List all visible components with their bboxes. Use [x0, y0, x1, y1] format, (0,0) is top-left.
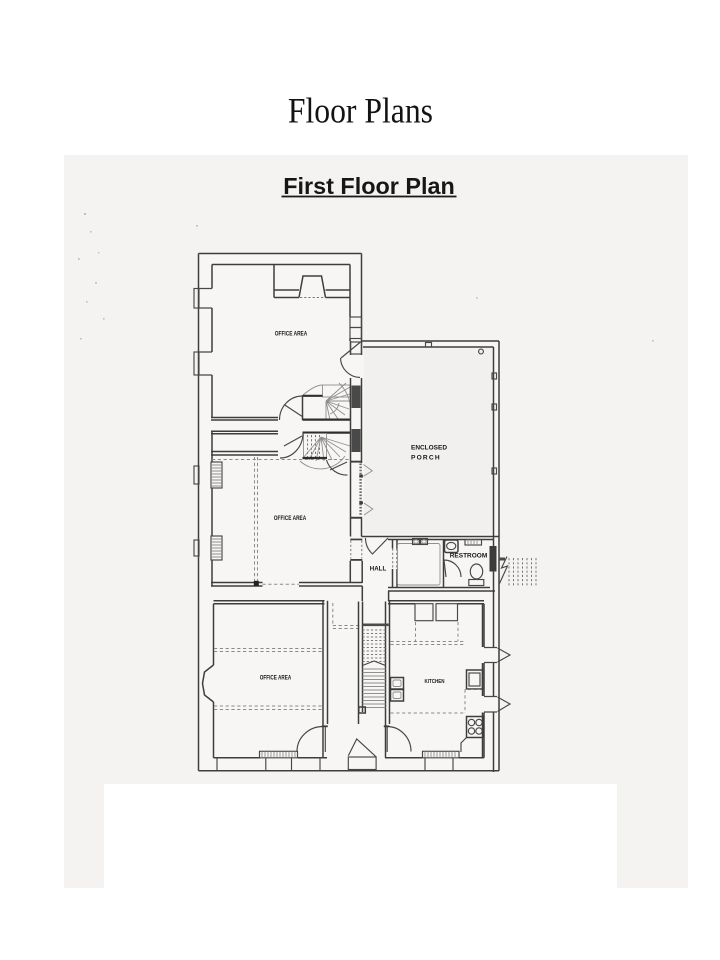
svg-text:OFFICE AREA: OFFICE AREA [274, 515, 307, 522]
svg-text:RESTROOM: RESTROOM [450, 553, 488, 560]
svg-text:Floor Plans: Floor Plans [288, 92, 433, 131]
svg-text:First Floor Plan: First Floor Plan [283, 173, 455, 199]
svg-text:OFFICE AREA: OFFICE AREA [275, 331, 308, 338]
svg-text:KITCHEN: KITCHEN [425, 679, 445, 685]
svg-text:PORCH: PORCH [411, 455, 441, 462]
svg-text:HALL: HALL [370, 566, 387, 573]
svg-text:ENCLOSED: ENCLOSED [411, 445, 447, 452]
svg-text:OFFICE AREA: OFFICE AREA [260, 675, 292, 682]
